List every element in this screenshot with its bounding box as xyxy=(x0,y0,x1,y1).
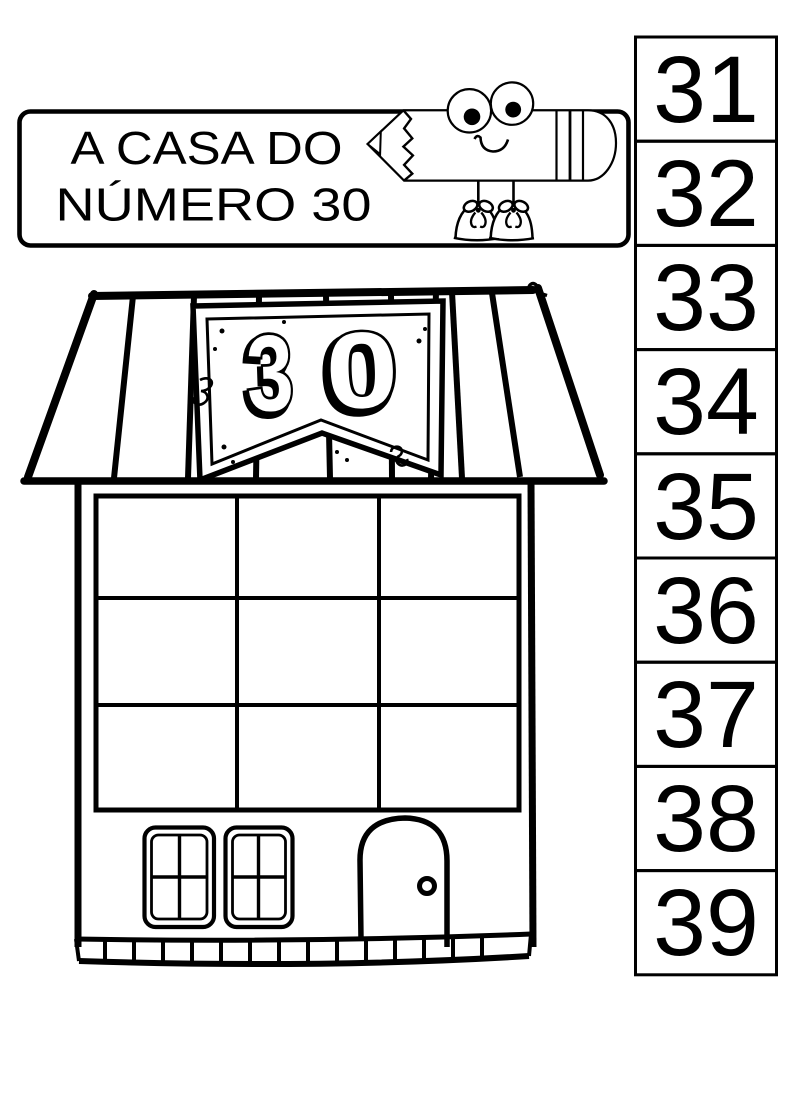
svg-text:32: 32 xyxy=(653,141,759,247)
svg-text:33: 33 xyxy=(653,245,759,351)
svg-text:A CASA DO: A CASA DO xyxy=(71,122,343,174)
svg-text:39: 39 xyxy=(653,870,759,976)
svg-text:0: 0 xyxy=(323,309,400,432)
svg-text:NÚMERO 30: NÚMERO 30 xyxy=(56,179,372,231)
svg-text:31: 31 xyxy=(653,37,759,143)
svg-text:38: 38 xyxy=(653,766,759,872)
svg-text:37: 37 xyxy=(653,662,759,768)
svg-text:35: 35 xyxy=(653,454,759,560)
svg-text:34: 34 xyxy=(653,349,759,455)
svg-text:3: 3 xyxy=(244,311,295,434)
svg-text:36: 36 xyxy=(653,558,759,664)
